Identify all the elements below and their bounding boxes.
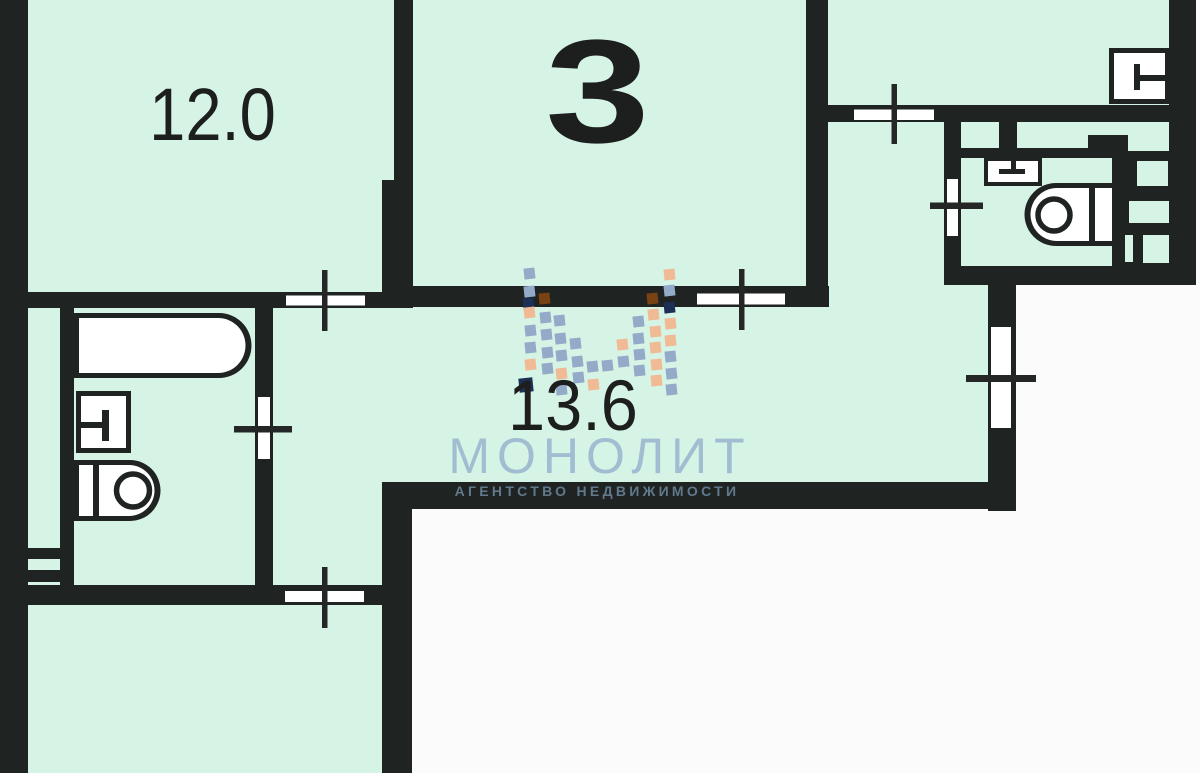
svg-text:12.0: 12.0 [149,73,276,156]
svg-text:3: 3 [545,9,650,174]
svg-text:АГЕНТСТВО НЕДВИЖИМОСТИ: АГЕНТСТВО НЕДВИЖИМОСТИ [455,483,740,499]
svg-text:МОНОЛИТ: МОНОЛИТ [448,428,751,484]
